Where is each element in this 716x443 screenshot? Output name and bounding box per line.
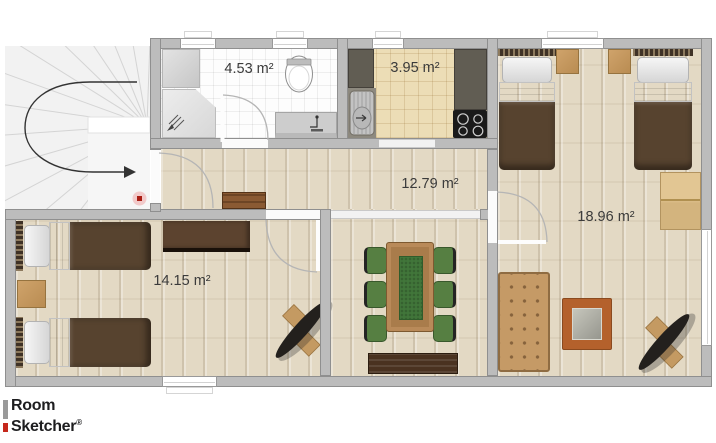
door-swing-arc	[266, 220, 317, 272]
door-swing-arc	[223, 95, 268, 140]
floorplan-canvas[interactable]: 4.53 m² 3.95 m² 12.79 m² 18.96 m² 14.15 …	[0, 0, 716, 443]
logo-text-sketcher: Sketcher®	[11, 414, 82, 436]
door-swing-arc	[497, 192, 547, 242]
logo-text-room: Room	[11, 397, 55, 415]
door-swing-overlay	[0, 0, 716, 443]
roomsketcher-logo: Room Sketcher®	[3, 397, 123, 439]
logo-gray-bar	[3, 400, 8, 419]
door-swing-arc	[159, 153, 213, 208]
registered-mark: ®	[76, 418, 82, 427]
logo-red-square	[3, 423, 8, 432]
